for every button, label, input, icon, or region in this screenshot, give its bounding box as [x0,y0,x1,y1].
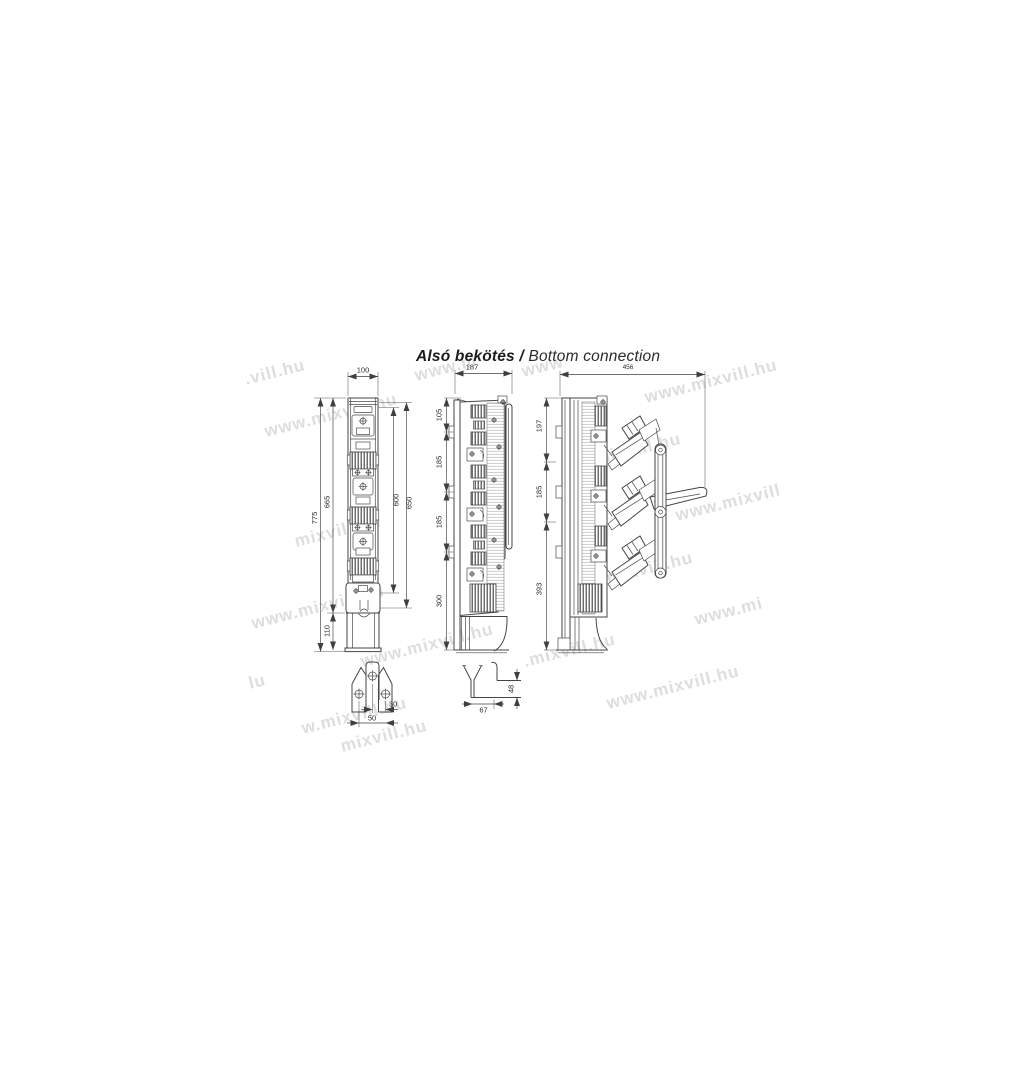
dim-front-span-inner: 600 [392,494,401,507]
dim-closed-seg1: 105 [435,409,444,422]
dim-closed-seg2: 185 [435,456,444,469]
dim-front-width: 100 [357,366,370,375]
bracket-dimensions: 67 48 [462,669,517,715]
front-view: 100 775 665 110 600 650 [310,366,414,652]
page: .vill.huwww.mwwwwww.mixvill.huwww.mixvil… [0,0,1024,1088]
dim-front-total-height: 775 [310,512,319,525]
side-view-closed: 187 105 185 185 300 [435,363,513,653]
terminal-detail-side: 67 48 [462,662,521,714]
dim-open-seg3: 393 [535,583,544,596]
dim-open-seg2: 185 [535,486,544,499]
dim-front-upper-height: 665 [323,496,332,509]
dim-front-lower-height: 110 [323,625,332,637]
dim-lug-span: 50 [368,714,376,723]
dim-lug-offset: 30 [389,700,397,709]
dim-open-seg1: 197 [535,420,544,433]
dim-open-depth: 456 [623,364,634,371]
technical-drawing: 100 775 665 110 600 650 [0,0,1024,1088]
dim-closed-seg4: 300 [435,595,444,608]
side-view-open: 456 197 185 393 [535,364,708,653]
lug-dimensions: 30 50 [347,684,398,727]
dim-closed-depth: 187 [466,363,479,372]
dim-bracket-height: 48 [507,685,516,693]
dim-front-span-outer: 650 [405,497,414,510]
dim-bracket-depth: 67 [479,706,487,715]
terminal-detail-front: 30 50 [347,662,398,727]
dim-closed-seg3: 185 [435,516,444,529]
